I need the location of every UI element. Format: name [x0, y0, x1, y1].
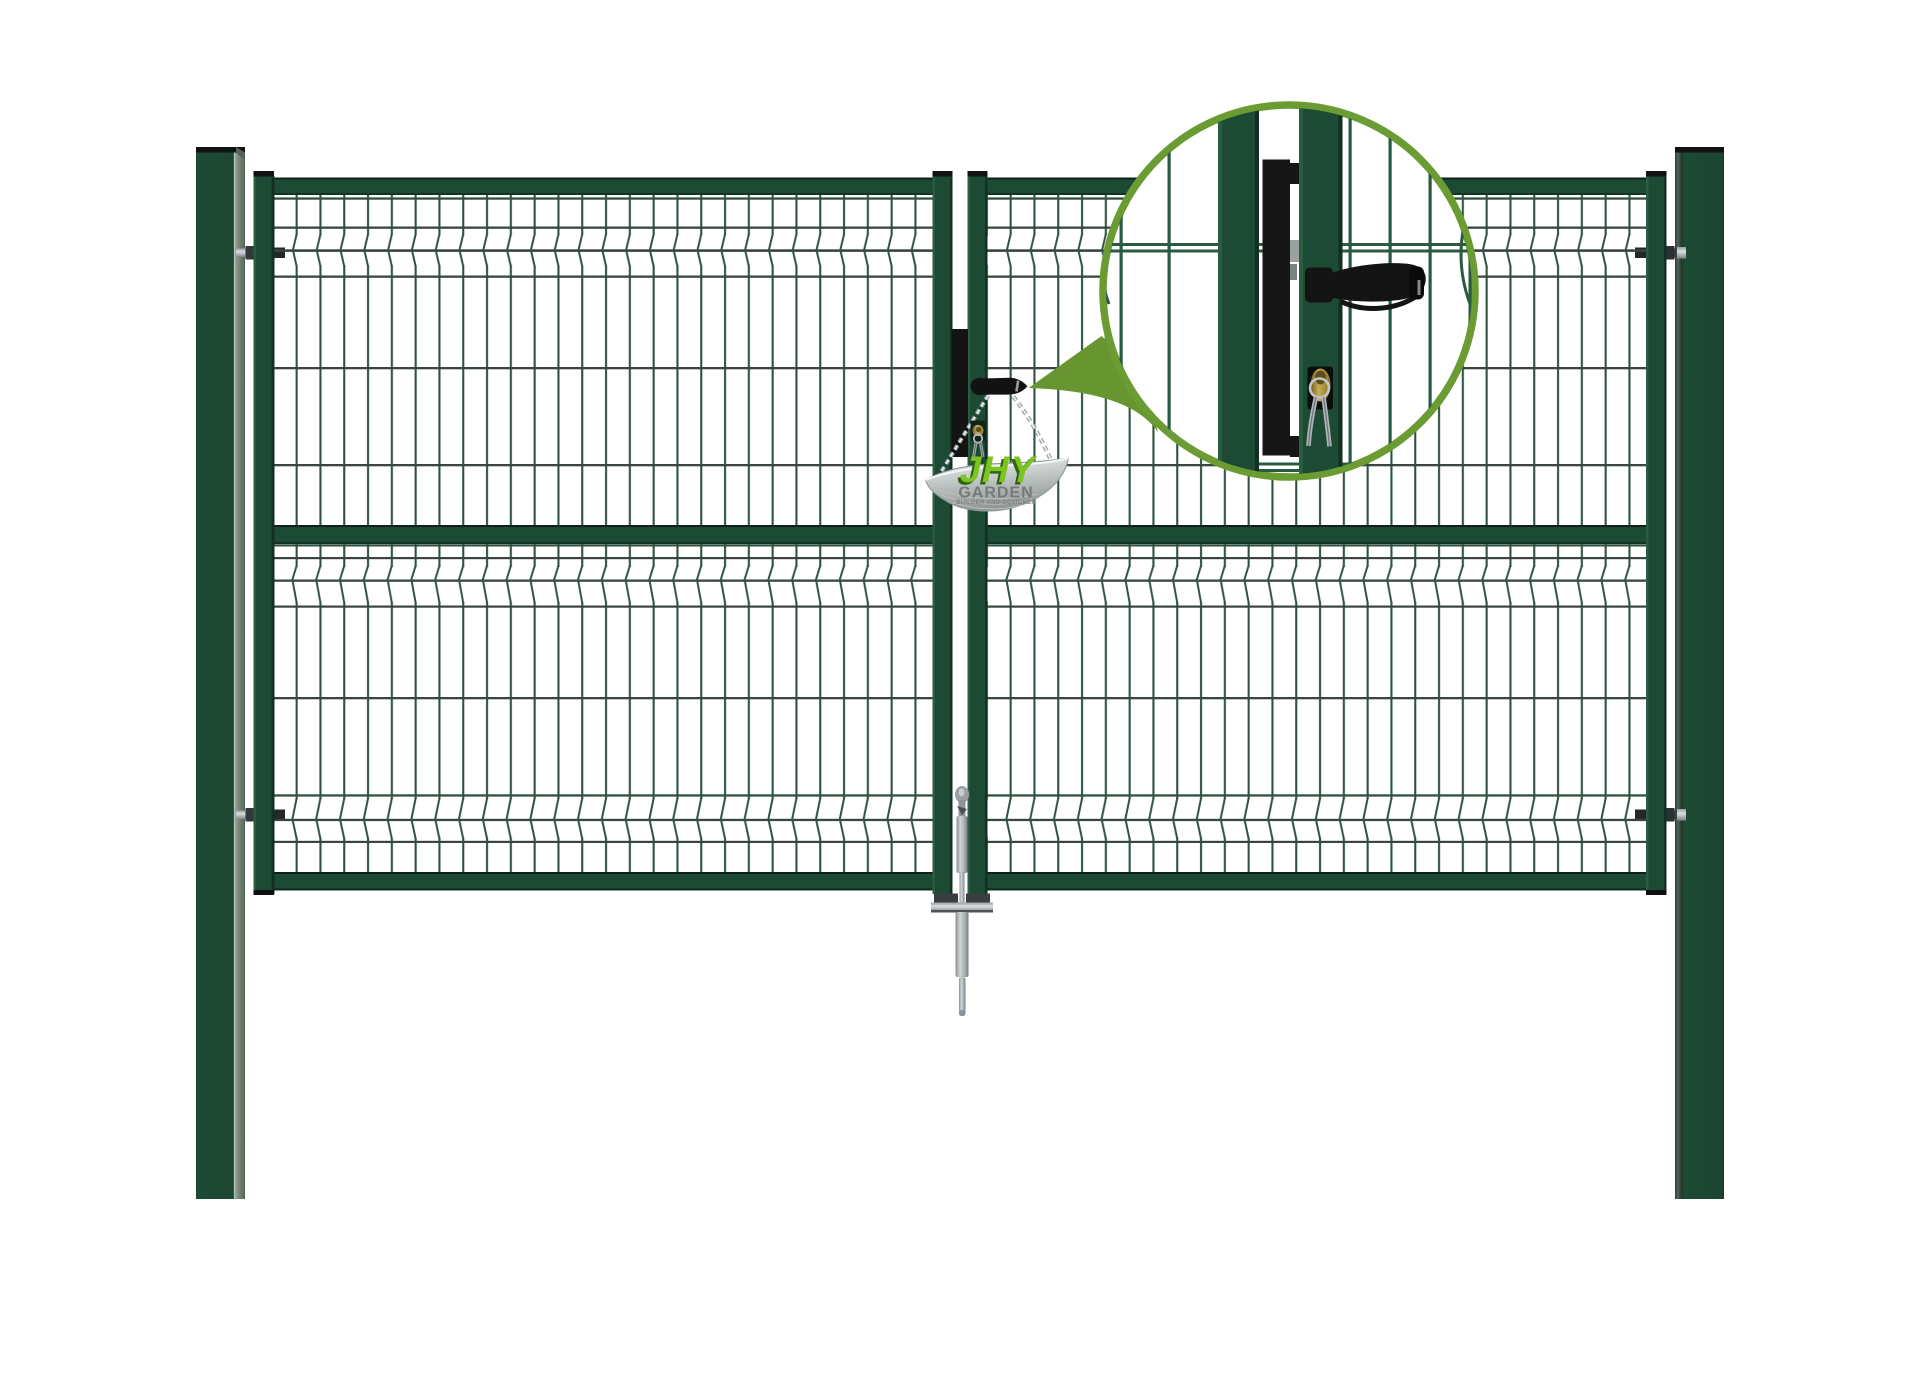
svg-text:GARDEN: GARDEN [958, 485, 1033, 502]
svg-text:BUILDER AND DESIGNER: BUILDER AND DESIGNER [956, 500, 1036, 506]
